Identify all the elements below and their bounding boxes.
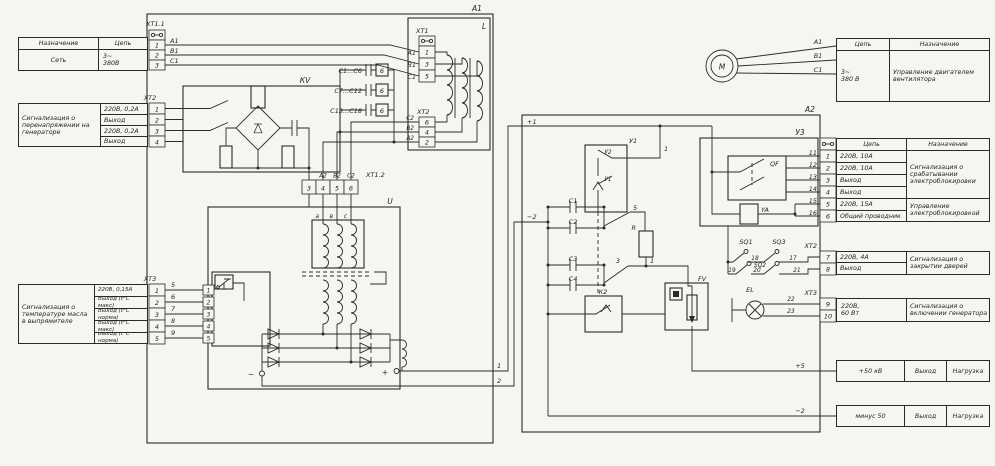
- y2-label: У2: [604, 150, 612, 156]
- pin-label: 4: [425, 129, 429, 137]
- interlock-purpose-bottom-cell: Управление электроблокировкой: [907, 199, 989, 221]
- block-a1-label: А1: [471, 4, 482, 13]
- u3-label: У3: [795, 128, 805, 137]
- tap-label: а: [315, 214, 319, 220]
- interlock-circuit-cell: Выход: [837, 187, 907, 199]
- hv-plus-circuit-cell: +50 кВ: [837, 361, 905, 381]
- overvoltage-purpose-cell: Сигнализация о перенапряжении на генерат…: [19, 104, 101, 146]
- pin-label: 2: [155, 117, 159, 125]
- kv-resistor-2: [282, 146, 294, 168]
- hv-minus-table: минус 50 Выход Нагрузка: [836, 405, 990, 427]
- ya-label: YA: [761, 206, 769, 214]
- y1-inner-label: У1: [604, 177, 611, 183]
- hv-minus-io-cell: Выход: [905, 406, 947, 426]
- minus-output: [262, 222, 548, 386]
- wire-label: В2: [333, 174, 341, 180]
- xt2-to-kv-wires: [165, 109, 183, 142]
- xt1-label: ХТ1: [415, 27, 429, 35]
- net-circuit-top: 3~: [103, 53, 112, 60]
- pin-label: 5: [425, 73, 429, 81]
- interlock-header-purpose: Назначение: [907, 139, 989, 151]
- hv-plus-table: +50 кВ Выход Нагрузка: [836, 360, 990, 382]
- mech-linkages: [598, 163, 752, 296]
- wire-label: 19: [728, 268, 736, 274]
- c3-label: С3: [569, 255, 578, 263]
- wire-label: 13: [809, 173, 817, 181]
- wire-label: 5: [171, 281, 175, 289]
- wire-label: С1: [407, 73, 416, 81]
- node1-label: 1: [650, 257, 654, 265]
- k2-chevron-icon: [601, 305, 611, 312]
- reactor-coil-3: [477, 61, 483, 121]
- capbank-label: С13...С18: [330, 107, 362, 115]
- temp-contact-pivot: [217, 286, 220, 289]
- wire-label: 6: [171, 293, 175, 301]
- bridge-and-plus-output: [262, 126, 712, 371]
- wire-label: А1: [169, 37, 179, 45]
- wire-label: В1: [814, 52, 823, 60]
- sq3-terminal: [775, 250, 779, 254]
- pin-label: 4: [155, 139, 159, 147]
- pin-label: 2: [425, 139, 429, 147]
- wire-label: 23: [787, 309, 795, 315]
- reactor-coil-2: [462, 58, 468, 118]
- pin-label: 8: [826, 266, 830, 274]
- c1-label: С1: [569, 197, 578, 205]
- ya-coil: [740, 204, 758, 224]
- schematic-labels: ХТ1.1 1 2 3 А1 В1 С1 ХТ2 1 2 3 4 ХТ3 1 2…: [143, 4, 832, 415]
- wire-label: 14: [809, 185, 817, 193]
- wire-label: 2: [497, 377, 501, 385]
- core-lines: [302, 272, 372, 276]
- pin-label: 10: [824, 313, 832, 321]
- motor-purpose-cell: Управление двигателем вентилятора: [890, 51, 989, 101]
- kv-bridge-diode-icon: [254, 124, 262, 133]
- interlock-circuit-cell: 220В, 15А: [837, 199, 907, 211]
- sensor-pin: 4: [207, 325, 211, 331]
- temperature-circuit-cell: 220В, 0,15А: [95, 285, 147, 297]
- lamp-circuit-cell: 220В, 60 Вт: [837, 299, 907, 321]
- pin-label: 3: [155, 62, 159, 70]
- lamp-circuit-top: 220В,: [841, 303, 859, 310]
- pin-label: 5: [826, 201, 830, 209]
- lamp-table: 220В, 60 Вт Сигнализация о включении ген…: [836, 298, 990, 322]
- tap-label: в: [330, 214, 334, 220]
- hv-minus-circuit-cell: минус 50: [837, 406, 905, 426]
- temperature-purpose-cell: Сигнализация о температуре масла в выпря…: [19, 285, 95, 343]
- pin-label: 1: [155, 287, 159, 295]
- wire-label: 20: [753, 268, 761, 274]
- capbank-count: 6: [380, 107, 384, 115]
- sensor-pin: 2: [207, 301, 211, 307]
- sq2-terminal-2: [775, 262, 779, 266]
- sq1-terminal: [744, 250, 748, 254]
- hv-plus-io-cell: Выход: [905, 361, 947, 381]
- capbank-count: 6: [380, 67, 384, 75]
- kv-bridge-diamond: [236, 106, 280, 150]
- doors-circuit-cell: 220В, 4А: [837, 252, 907, 263]
- k2-label: К2: [599, 288, 608, 296]
- input-minus-label: −2: [527, 213, 537, 221]
- wire-label: 9: [171, 329, 175, 337]
- temperature-circuit-cell: Выход (t°C норма): [95, 333, 147, 343]
- wire-label: С2: [347, 174, 355, 180]
- qf-label: QF: [770, 160, 779, 168]
- xt3-left-label: ХТ3: [143, 275, 157, 283]
- block-u3-outline: [700, 138, 818, 226]
- pin-label: 6: [349, 185, 353, 193]
- net-purpose-cell: Сеть: [19, 50, 99, 70]
- wire-label: 7: [171, 305, 176, 313]
- wire-label: 15: [809, 197, 817, 205]
- fv-square-fill: [673, 291, 679, 297]
- node3-label: 3: [616, 257, 620, 265]
- c4-label: С4: [569, 275, 578, 283]
- choke-connections: [435, 52, 477, 142]
- plus-sign: +: [382, 368, 388, 377]
- pin-label: 6: [826, 213, 830, 221]
- xt2-left-label: ХТ2: [143, 94, 157, 102]
- pin-label: 4: [826, 189, 830, 197]
- pin-label: 2: [826, 165, 830, 173]
- pin-label: 4: [155, 323, 159, 331]
- xt2-right-label: ХТ2: [803, 242, 817, 250]
- wire-label: А2: [318, 174, 327, 180]
- hv-plus-wire-label: +5: [795, 362, 805, 370]
- capbank-label: С1...С6: [338, 67, 362, 75]
- wire-label: 11: [809, 149, 817, 157]
- kv-resistor-top: [251, 86, 265, 108]
- motor-circuit-cell: 3~ 380 В: [837, 51, 890, 101]
- capbank-label: С7...С12: [334, 87, 362, 95]
- wire-label: С2: [406, 116, 414, 122]
- pin-label: 2: [155, 52, 159, 60]
- pin-label: 1: [425, 49, 429, 57]
- node5-label: 5: [633, 204, 637, 212]
- pin-label: 2: [155, 299, 159, 307]
- primary-coil-a: [323, 224, 329, 268]
- hv-minus-wire-label: −2: [795, 407, 805, 415]
- net-circuit-bottom: 380В: [103, 60, 119, 67]
- interlock-circuit-cell: Выход: [837, 175, 907, 187]
- component-symbols: [215, 50, 779, 376]
- doors-purpose-cell: Сигнализация о закрытии дверей: [907, 252, 989, 274]
- overvoltage-table: Сигнализация о перенапряжении на генерат…: [18, 103, 148, 147]
- wire-label: 16: [809, 209, 817, 217]
- sq1-label: SQ1: [739, 238, 752, 246]
- el-label: EL: [746, 286, 754, 294]
- wire-label: 21: [793, 268, 800, 274]
- plus-terminal: [394, 369, 399, 374]
- temperature-table: Сигнализация о температуре масла в выпря…: [18, 284, 148, 344]
- junction-dots: [257, 125, 797, 364]
- block-a1-outline: [147, 14, 493, 443]
- motor-circuit-bottom: 380 В: [841, 76, 859, 83]
- pin-label: 1: [826, 153, 830, 161]
- pin-label: 6: [425, 119, 429, 127]
- block-l-label: L: [482, 22, 486, 31]
- motor-header-circuit: Цепь: [837, 39, 890, 51]
- lamp-cross-icon: [749, 304, 761, 316]
- pin-label: 4: [321, 185, 325, 193]
- wire1-label: 1: [664, 145, 668, 153]
- capbank-count: 6: [380, 87, 384, 95]
- doors-circuit-cell: Выход: [837, 263, 907, 274]
- wire-label: С1: [170, 57, 179, 65]
- temperature-circuit-cell: Выход (t°C норма): [95, 309, 147, 321]
- smoothing-choke: [402, 340, 407, 367]
- minus-terminal: [260, 371, 265, 376]
- sensor-pin: 5: [207, 337, 211, 343]
- wire-label: 12: [809, 161, 817, 169]
- overvoltage-circuit-cell: 220В, 0,2А: [101, 126, 147, 137]
- interlock-purpose-top-cell: Сигнализация о срабатывании электроблоки…: [907, 151, 989, 199]
- pin-label: 5: [335, 185, 339, 193]
- schematic-page: ХТ1.1 1 2 3 А1 В1 С1 ХТ2 1 2 3 4 ХТ3 1 2…: [0, 0, 995, 466]
- secondary-coil-a: [323, 280, 329, 324]
- pin-label: 5: [155, 335, 159, 343]
- pin-label: 3: [155, 311, 159, 319]
- motor-table: Цепь Назначение 3~ 380 В Управление двиг…: [836, 38, 990, 102]
- overvoltage-circuit-cell: Выход: [101, 137, 147, 146]
- y1-label: У1: [629, 137, 637, 145]
- net-table: Назначение Цепь Сеть 3~ 380В: [18, 37, 148, 71]
- sensor-pin: 1: [207, 289, 211, 295]
- xt3-right-label: ХТ3: [803, 289, 817, 297]
- interlock-circuit-cell: 220В, 10А: [837, 151, 907, 163]
- wire-label: 1: [497, 362, 501, 370]
- net-header-purpose: Назначение: [19, 38, 99, 50]
- resistor-r: [639, 231, 653, 257]
- pin-label: 3: [307, 185, 311, 193]
- overvoltage-circuit-cell: Выход: [101, 115, 147, 126]
- secondary-coil-b: [337, 280, 343, 324]
- block-a2-label: А2: [804, 105, 815, 114]
- motor-header-purpose: Назначение: [890, 39, 989, 51]
- xt11-label: ХТ1.1: [145, 20, 165, 28]
- pin-label: 1: [155, 106, 159, 114]
- kv-resistor-1: [220, 146, 232, 168]
- lamp-circuit-bottom: 60 Вт: [841, 310, 859, 317]
- tap-label: с: [344, 214, 348, 220]
- hv-minus-load-cell: Нагрузка: [947, 406, 989, 426]
- sensor-pin: 3: [207, 313, 211, 319]
- block-kv-outline: [183, 86, 340, 172]
- temperature-circuit-cell: Выход (t°C макс): [95, 297, 147, 309]
- secondary-coil-c: [351, 280, 357, 324]
- sq3-label: SQ3: [772, 238, 785, 246]
- wire-label: 22: [787, 297, 795, 303]
- wire-label: С1: [814, 66, 823, 74]
- pin-label: 3: [425, 61, 429, 69]
- interlock-header-circuit: Цепь: [837, 139, 907, 151]
- pin-label: 1: [155, 42, 159, 50]
- xt2-l-label: ХТ2: [416, 108, 430, 116]
- net-header-circuit: Цепь: [99, 38, 147, 50]
- sensor-internal: [219, 279, 244, 301]
- hv-plus-load-cell: Нагрузка: [947, 361, 989, 381]
- interlock-table: Цепь Назначение 220В, 10А 220В, 10А Выхо…: [836, 138, 990, 222]
- fv-label: FV: [698, 275, 707, 283]
- motor-letter: М: [719, 63, 726, 72]
- wire-label: В1: [407, 61, 416, 69]
- temperature-circuit-cell: Выход (t°C макс): [95, 321, 147, 333]
- pin-label: 3: [155, 128, 159, 136]
- input-plus-label: +1: [527, 118, 537, 126]
- block-u-label: U: [387, 197, 393, 206]
- r-label: R: [631, 224, 636, 232]
- interlock-circuit-cell: 220В, 10А: [837, 163, 907, 175]
- motor-circuit-top: 3~: [841, 69, 850, 76]
- minus-sign: −: [248, 370, 254, 379]
- c2-label: С2: [569, 218, 578, 226]
- wire-label: В2: [406, 126, 414, 132]
- wires: [165, 45, 836, 416]
- pin-label: 3: [826, 177, 830, 185]
- core-ground: [370, 272, 386, 284]
- interlock-circuit-cell: Общий проводник: [837, 211, 907, 221]
- wire-label: В1: [170, 47, 179, 55]
- secondary-to-bridge: [323, 324, 351, 362]
- wire-label: 18: [751, 256, 759, 262]
- primary-coil-b: [337, 224, 343, 268]
- kv-label: КV: [300, 76, 311, 85]
- net-circuit-cell: 3~ 380В: [99, 50, 147, 70]
- wire-label: 8: [171, 317, 175, 325]
- overvoltage-circuit-cell: 220В, 0,2А: [101, 104, 147, 115]
- xt12-label: ХТ1.2: [365, 171, 385, 179]
- lamp-purpose-cell: Сигнализация о включении генератора: [907, 299, 989, 321]
- wire-label: А1: [813, 38, 823, 46]
- wire-label: 17: [789, 256, 797, 262]
- wire-label: А2: [405, 136, 414, 142]
- wire-label: А1: [406, 49, 416, 57]
- primary-coil-c: [351, 224, 357, 268]
- doors-table: 220В, 4А Выход Сигнализация о закрытии д…: [836, 251, 990, 275]
- pin-label: 9: [826, 301, 830, 309]
